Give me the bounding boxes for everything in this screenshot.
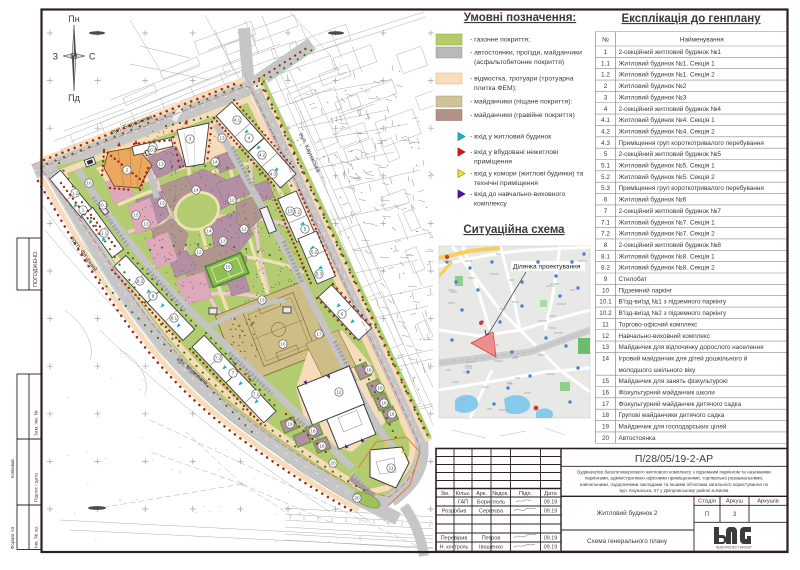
svg-text:Навчально-виховний комплекс: Навчально-виховний комплекс bbox=[619, 332, 711, 340]
svg-text:Петров: Петров bbox=[482, 536, 501, 542]
svg-text:Найменування: Найменування bbox=[680, 36, 724, 44]
svg-text:5.2: 5.2 bbox=[311, 250, 318, 255]
svg-text:4.3: 4.3 bbox=[270, 172, 277, 177]
svg-text:18: 18 bbox=[366, 368, 372, 373]
svg-text:Пн: Пн bbox=[68, 14, 79, 24]
svg-text:Житловий будинок №4. Секція 1: Житловий будинок №4. Секція 1 bbox=[619, 116, 716, 124]
svg-text:П/28/05/19-2-АР: П/28/05/19-2-АР bbox=[635, 453, 713, 465]
svg-text:2: 2 bbox=[604, 83, 608, 90]
svg-text:10.2: 10.2 bbox=[148, 148, 157, 153]
svg-text:Арк.: Арк. bbox=[476, 491, 487, 497]
svg-text:13: 13 bbox=[143, 222, 149, 227]
svg-text:1.2: 1.2 bbox=[601, 72, 610, 79]
svg-text:паркінгами, адміністративно-оф: паркінгами, адміністративно-офісними при… bbox=[585, 476, 763, 481]
svg-text:09.19: 09.19 bbox=[544, 545, 558, 551]
svg-text:Ігровий майданчик для дітей до: Ігровий майданчик для дітей дошкільного … bbox=[619, 354, 748, 362]
svg-text:плитка ФЕМ):: плитка ФЕМ): bbox=[474, 85, 517, 92]
svg-text:Групові майданчики дитячого са: Групові майданчики дитячого садка bbox=[619, 411, 725, 419]
svg-text:Копіював: Копіював bbox=[10, 459, 15, 478]
svg-text:2-секційний житловий будинок №: 2-секційний житловий будинок №1 bbox=[619, 48, 722, 56]
svg-text:20: 20 bbox=[354, 496, 360, 501]
svg-text:12: 12 bbox=[241, 227, 247, 232]
svg-text:20: 20 bbox=[602, 435, 610, 442]
svg-text:Майданчик для відпочинку дорос: Майданчик для відпочинку дорослого насел… bbox=[619, 343, 765, 351]
svg-text:- автостоянки, проїзди, майдан: - автостоянки, проїзди, майданчики bbox=[470, 49, 582, 57]
svg-text:Стилобат: Стилобат bbox=[619, 275, 647, 283]
svg-text:9: 9 bbox=[604, 276, 608, 283]
svg-text:Ділянка проектування: Ділянка проектування bbox=[513, 263, 581, 271]
svg-text:4.1: 4.1 bbox=[601, 117, 610, 124]
svg-text:1: 1 bbox=[604, 49, 608, 56]
svg-text:4.3: 4.3 bbox=[601, 140, 610, 147]
svg-text:навчальними, оздоровчими закла: навчальними, оздоровчими закладами та ін… bbox=[580, 482, 769, 487]
svg-text:14: 14 bbox=[206, 229, 212, 234]
svg-text:1.2: 1.2 bbox=[72, 191, 79, 196]
svg-text:8.2: 8.2 bbox=[137, 279, 144, 284]
svg-text:Житловий будинок №5. Секція 2: Житловий будинок №5. Секція 2 bbox=[619, 173, 716, 181]
svg-text:В'їзд-виїзд №2 з підземного па: В'їзд-виїзд №2 з підземного паркінгу bbox=[619, 309, 727, 317]
svg-text:17: 17 bbox=[316, 332, 322, 337]
svg-text:Ситуаційна схема: Ситуаційна схема bbox=[463, 224, 565, 236]
svg-text:Пд: Пд bbox=[68, 93, 80, 103]
svg-text:№: № bbox=[602, 37, 609, 44]
svg-text:З: З bbox=[53, 52, 58, 62]
svg-text:09.19: 09.19 bbox=[544, 509, 558, 515]
svg-text:10.1: 10.1 bbox=[599, 299, 612, 306]
svg-text:Дата: Дата bbox=[544, 491, 557, 497]
svg-text:18: 18 bbox=[377, 386, 383, 391]
svg-text:18: 18 bbox=[310, 429, 316, 434]
svg-text:1.1: 1.1 bbox=[601, 60, 610, 67]
svg-text:5: 5 bbox=[604, 151, 608, 158]
svg-text:12: 12 bbox=[196, 250, 202, 255]
svg-text:13: 13 bbox=[220, 239, 226, 244]
svg-text:11: 11 bbox=[389, 466, 394, 471]
svg-text:Фізкультурний майданчик школи: Фізкультурний майданчик школи bbox=[619, 389, 716, 397]
svg-text:Автостоянка: Автостоянка bbox=[619, 435, 656, 442]
svg-text:Житловий будинок №8. Секція 1: Житловий будинок №8. Секція 1 bbox=[619, 252, 716, 260]
svg-text:10.2: 10.2 bbox=[599, 310, 612, 317]
svg-text:Житловий будинок №7. Секція 1: Житловий будинок №7. Секція 1 bbox=[619, 218, 716, 226]
svg-text:Житловий будинок №5. Секція 1: Житловий будинок №5. Секція 1 bbox=[619, 162, 716, 170]
svg-text:18: 18 bbox=[602, 412, 610, 419]
svg-text:Житловий будинок №1. Секція 2: Житловий будинок №1. Секція 2 bbox=[619, 71, 716, 79]
svg-text:16: 16 bbox=[602, 390, 610, 397]
svg-text:4.2: 4.2 bbox=[259, 153, 266, 158]
svg-text:приміщення: приміщення bbox=[474, 158, 512, 166]
svg-text:молодшого шкільного віку: молодшого шкільного віку bbox=[619, 366, 697, 374]
svg-text:Сергеєва: Сергеєва bbox=[479, 509, 504, 515]
svg-text:5.1: 5.1 bbox=[601, 163, 610, 170]
svg-text:09.19: 09.19 bbox=[544, 500, 558, 506]
svg-text:11: 11 bbox=[602, 321, 609, 328]
svg-text:Експлікація до генплану: Експлікація до генплану bbox=[621, 13, 761, 25]
svg-text:- майданчики (піщане покриття): - майданчики (піщане покриття): bbox=[470, 98, 572, 106]
svg-text:ГАП: ГАП bbox=[458, 500, 468, 506]
svg-text:Розробив: Розробив bbox=[442, 509, 467, 515]
svg-text:Зам. інв. №: Зам. інв. № bbox=[34, 410, 40, 436]
svg-text:7.1: 7.1 bbox=[601, 219, 610, 226]
svg-text:5.3: 5.3 bbox=[601, 185, 610, 192]
svg-text:20: 20 bbox=[330, 461, 336, 466]
svg-text:- вхід у комори (житлові будин: - вхід у комори (житлові будинки) та bbox=[470, 170, 583, 178]
svg-text:19: 19 bbox=[602, 424, 610, 431]
svg-text:Формат А3: Формат А3 bbox=[10, 526, 15, 549]
svg-text:7.2: 7.2 bbox=[601, 231, 610, 238]
svg-text:14: 14 bbox=[212, 160, 218, 165]
svg-text:1.1: 1.1 bbox=[101, 231, 108, 236]
svg-text:17: 17 bbox=[602, 401, 610, 408]
svg-text:8.1: 8.1 bbox=[601, 253, 610, 260]
svg-text:Підземний паркінг: Підземний паркінг bbox=[619, 286, 673, 294]
svg-text:8.2: 8.2 bbox=[601, 265, 610, 272]
svg-text:Перевірив: Перевірив bbox=[441, 536, 468, 542]
svg-text:13: 13 bbox=[287, 209, 293, 214]
svg-text:Фізкультурний майданчик дитячо: Фізкультурний майданчик дитячого садка bbox=[619, 400, 742, 408]
svg-text:Інв. № ор.: Інв. № ор. bbox=[34, 526, 40, 548]
svg-text:5.1: 5.1 bbox=[294, 210, 301, 215]
svg-text:18: 18 bbox=[389, 412, 395, 417]
svg-text:- газонне покриття;: - газонне покриття; bbox=[470, 37, 530, 44]
svg-text:13: 13 bbox=[219, 136, 225, 141]
svg-text:15: 15 bbox=[225, 265, 231, 270]
svg-text:2-секційний житловий будинок №: 2-секційний житловий будинок №7 bbox=[619, 207, 722, 215]
svg-text:13: 13 bbox=[602, 344, 610, 351]
svg-text:Майданчик для занять фізкульту: Майданчик для занять фізкультурою bbox=[619, 377, 728, 385]
svg-text:Приміщення груп короткотривало: Приміщення груп короткотривалого перебув… bbox=[619, 184, 765, 192]
svg-text:Будівництво багатоповерхового: Будівництво багатоповерхового житлового … bbox=[577, 470, 771, 475]
svg-text:ПОГОДЖЕНО:: ПОГОДЖЕНО: bbox=[33, 250, 39, 287]
svg-text:Умовні позначення:: Умовні позначення: bbox=[464, 12, 576, 24]
svg-text:5.3: 5.3 bbox=[316, 272, 323, 277]
svg-text:Приміщення груп короткотривало: Приміщення груп короткотривалого перебув… bbox=[619, 139, 765, 147]
svg-text:- вхід до навчально-виховного: - вхід до навчально-виховного bbox=[470, 190, 566, 198]
svg-text:- відмостка, тротуари (тротуар: - відмостка, тротуари (тротуарна bbox=[470, 75, 574, 83]
svg-text:4: 4 bbox=[604, 106, 608, 113]
svg-text:Житловий будинок №1. Секція 1: Житловий будинок №1. Секція 1 bbox=[619, 59, 716, 67]
svg-text:комплексу: комплексу bbox=[474, 201, 507, 208]
svg-text:Житловий будинок №3: Житловий будинок №3 bbox=[619, 93, 687, 101]
svg-text:10: 10 bbox=[86, 181, 92, 186]
svg-text:14: 14 bbox=[193, 188, 199, 193]
svg-text:2-секційний житловий будинок №: 2-секційний житловий будинок №5 bbox=[619, 150, 722, 158]
svg-text:П: П bbox=[705, 512, 709, 518]
svg-text:Житловий будинок №7. Секція 2: Житловий будинок №7. Секція 2 bbox=[619, 230, 716, 238]
svg-text:Стадія: Стадія bbox=[698, 499, 716, 505]
svg-text:6: 6 bbox=[604, 197, 608, 204]
svg-text:4.2: 4.2 bbox=[601, 128, 610, 135]
svg-text:- вхід у вбудовані нежитлові: - вхід у вбудовані нежитлові bbox=[470, 148, 559, 156]
svg-text:Майданчик для господарських ці: Майданчик для господарських цілей bbox=[619, 423, 727, 431]
svg-text:4.1: 4.1 bbox=[234, 118, 241, 123]
svg-text:Житловий будинок №8. Секція 2: Житловий будинок №8. Секція 2 bbox=[619, 264, 716, 272]
svg-text:10.1: 10.1 bbox=[99, 203, 108, 208]
svg-text:7.2: 7.2 bbox=[215, 356, 222, 361]
svg-text:Схема генерального плану: Схема генерального плану bbox=[587, 538, 668, 545]
svg-text:В'їзд-виїзд №1 з підземного па: В'їзд-виїзд №1 з підземного паркінгу bbox=[619, 298, 727, 306]
svg-text:12: 12 bbox=[336, 390, 342, 395]
svg-text:7: 7 bbox=[604, 208, 608, 215]
svg-text:14: 14 bbox=[602, 355, 610, 362]
svg-text:Кільк.: Кільк. bbox=[456, 491, 471, 497]
svg-text:Підпис і дата: Підпис і дата bbox=[34, 473, 40, 502]
svg-text:18: 18 bbox=[319, 444, 325, 449]
svg-text:- вхід у житловий будинок: - вхід у житловий будинок bbox=[470, 133, 551, 141]
svg-text:Аркушів: Аркушів bbox=[757, 499, 779, 505]
svg-text:16: 16 bbox=[280, 342, 286, 347]
svg-text:С: С bbox=[89, 52, 96, 62]
svg-text:Житловий будинок №4. Секція 2: Житловий будинок №4. Секція 2 bbox=[619, 127, 716, 135]
svg-text:12: 12 bbox=[229, 198, 235, 203]
svg-text:№док.: №док. bbox=[492, 491, 509, 497]
svg-text:Іващенко: Іващенко bbox=[479, 545, 503, 551]
svg-text:2-секційний житловий будинок №: 2-секційний житловий будинок №8 bbox=[619, 241, 722, 249]
svg-text:7.1: 7.1 bbox=[253, 392, 260, 397]
svg-text:13: 13 bbox=[159, 201, 165, 206]
svg-text:8: 8 bbox=[604, 242, 608, 249]
svg-text:Борисполь: Борисполь bbox=[477, 500, 505, 506]
svg-text:вул. Каунаська, 27 у Дніпровсь: вул. Каунаська, 27 у Дніпровському район… bbox=[620, 487, 729, 493]
svg-text:Житловий будинок 2: Житловий будинок 2 bbox=[597, 509, 658, 517]
svg-text:2-секційний житловий будинок №: 2-секційний житловий будинок №4 bbox=[619, 105, 722, 113]
svg-text:5.2: 5.2 bbox=[601, 174, 610, 181]
svg-text:13: 13 bbox=[259, 298, 265, 303]
svg-text:19: 19 bbox=[287, 422, 293, 427]
svg-text:8.1: 8.1 bbox=[171, 316, 178, 321]
svg-text:- майданчики (гравійне покритт: - майданчики (гравійне покриття) bbox=[470, 111, 575, 119]
svg-text:15: 15 bbox=[133, 213, 139, 218]
svg-text:15: 15 bbox=[602, 378, 610, 385]
svg-text:13: 13 bbox=[158, 162, 164, 167]
svg-text:18: 18 bbox=[381, 401, 387, 406]
svg-text:Підп.: Підп. bbox=[519, 491, 533, 497]
svg-text:12: 12 bbox=[602, 333, 610, 340]
svg-text:Торгово-офісний комплекс: Торгово-офісний комплекс bbox=[619, 320, 699, 328]
svg-text:Аркуш: Аркуш bbox=[726, 499, 744, 505]
svg-text:Житловий будинок №6: Житловий будинок №6 bbox=[619, 196, 687, 204]
svg-text:10: 10 bbox=[602, 287, 610, 294]
svg-text:Зм.: Зм. bbox=[441, 491, 450, 497]
svg-text:(асфальтобетонне покриття): (асфальтобетонне покриття) bbox=[474, 58, 564, 66]
svg-text:Житловий будинок №2: Житловий будинок №2 bbox=[619, 82, 687, 90]
svg-text:3: 3 bbox=[604, 94, 608, 101]
svg-text:Н. контроль: Н. контроль bbox=[440, 545, 469, 551]
svg-text:BUD-PROJECT GROUP: BUD-PROJECT GROUP bbox=[716, 546, 751, 550]
svg-text:09.19: 09.19 bbox=[544, 536, 558, 542]
svg-text:технічні приміщення: технічні приміщення bbox=[474, 179, 538, 187]
